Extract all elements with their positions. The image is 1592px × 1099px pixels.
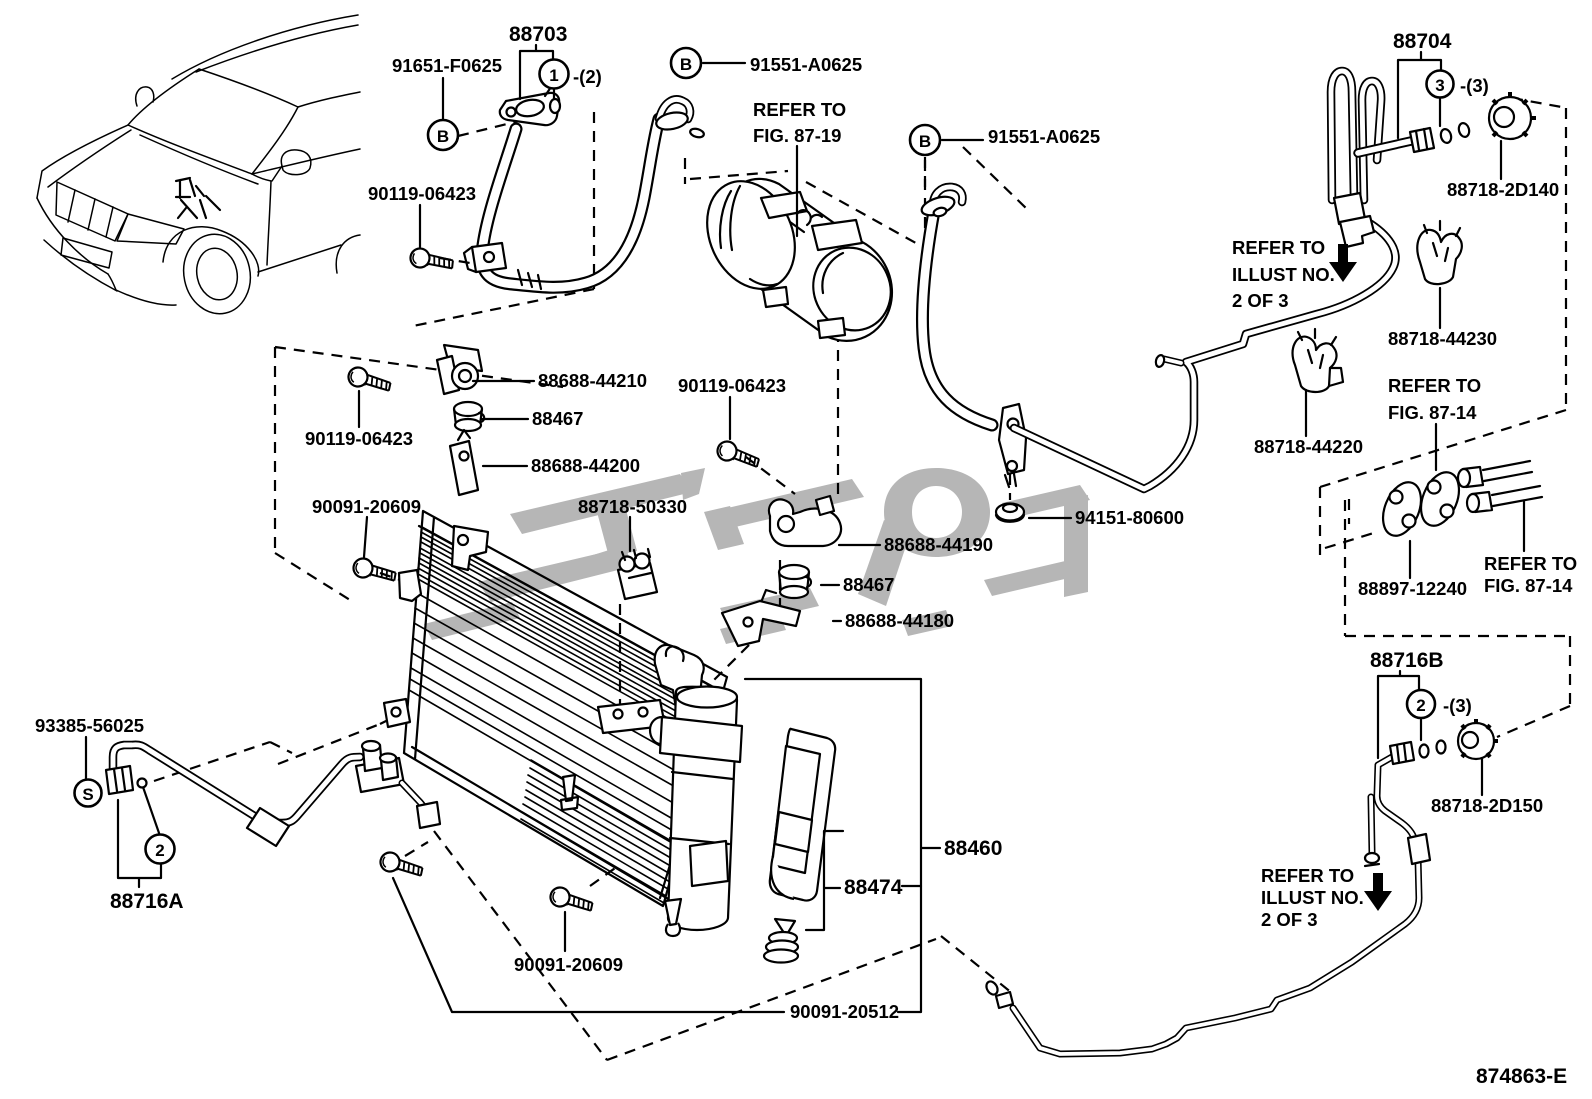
svg-text:88704: 88704 — [1393, 30, 1452, 53]
svg-text:FIG. 87-14: FIG. 87-14 — [1388, 402, 1477, 423]
svg-text:88718-2D140: 88718-2D140 — [1447, 179, 1559, 200]
svg-text:B: B — [680, 55, 692, 74]
svg-text:94151-80600: 94151-80600 — [1075, 507, 1184, 528]
svg-text:88688-44180: 88688-44180 — [845, 610, 954, 631]
svg-text:S: S — [82, 785, 93, 804]
svg-text:REFER TO: REFER TO — [753, 99, 846, 120]
svg-text:88897-12240: 88897-12240 — [1358, 578, 1467, 599]
svg-text:88716B: 88716B — [1370, 649, 1444, 672]
svg-text:88688-44200: 88688-44200 — [531, 455, 640, 476]
svg-text:88688-44210: 88688-44210 — [538, 370, 647, 391]
svg-text:REFER TO: REFER TO — [1484, 553, 1577, 574]
svg-text:90119-06423: 90119-06423 — [368, 183, 476, 204]
svg-text:90091-20512: 90091-20512 — [790, 1001, 899, 1022]
svg-text:B: B — [437, 127, 449, 146]
svg-text:93385-56025: 93385-56025 — [35, 715, 144, 736]
svg-text:ILLUST NO.: ILLUST NO. — [1261, 887, 1364, 908]
svg-text:REFER TO: REFER TO — [1388, 375, 1481, 396]
svg-text:2: 2 — [155, 841, 164, 860]
svg-text:-(2): -(2) — [573, 66, 602, 87]
svg-text:90091-20609: 90091-20609 — [514, 954, 623, 975]
svg-text:-(3): -(3) — [1443, 695, 1472, 716]
svg-text:88467: 88467 — [532, 408, 583, 429]
svg-text:88688-44190: 88688-44190 — [884, 534, 993, 555]
svg-text:-(3): -(3) — [1460, 75, 1489, 96]
svg-text:91651-F0625: 91651-F0625 — [392, 55, 502, 76]
svg-text:2 OF 3: 2 OF 3 — [1232, 290, 1289, 311]
svg-text:2 OF 3: 2 OF 3 — [1261, 909, 1318, 930]
svg-text:88718-2D150: 88718-2D150 — [1431, 795, 1543, 816]
svg-text:3: 3 — [1435, 76, 1444, 95]
svg-text:88718-50330: 88718-50330 — [578, 496, 687, 517]
svg-text:88703: 88703 — [509, 23, 567, 46]
svg-text:ILLUST NO.: ILLUST NO. — [1232, 264, 1335, 285]
svg-text:90119-06423: 90119-06423 — [678, 375, 786, 396]
svg-text:874863-E: 874863-E — [1476, 1065, 1567, 1088]
svg-text:88474: 88474 — [844, 876, 903, 899]
svg-text:91551-A0625: 91551-A0625 — [750, 54, 862, 75]
svg-text:88718-44230: 88718-44230 — [1388, 328, 1497, 349]
svg-text:FIG. 87-19: FIG. 87-19 — [753, 125, 841, 146]
svg-text:2: 2 — [1416, 696, 1425, 715]
svg-text:FIG. 87-14: FIG. 87-14 — [1484, 575, 1573, 596]
svg-text:88718-44220: 88718-44220 — [1254, 436, 1363, 457]
svg-text:1: 1 — [549, 66, 558, 85]
svg-text:91551-A0625: 91551-A0625 — [988, 126, 1100, 147]
svg-text:88716A: 88716A — [110, 890, 184, 913]
svg-text:88460: 88460 — [944, 837, 1002, 860]
svg-text:88467: 88467 — [843, 574, 894, 595]
svg-text:90091-20609: 90091-20609 — [312, 496, 421, 517]
svg-text:REFER TO: REFER TO — [1261, 865, 1354, 886]
svg-text:REFER TO: REFER TO — [1232, 237, 1325, 258]
svg-text:B: B — [919, 132, 931, 151]
svg-text:90119-06423: 90119-06423 — [305, 428, 413, 449]
